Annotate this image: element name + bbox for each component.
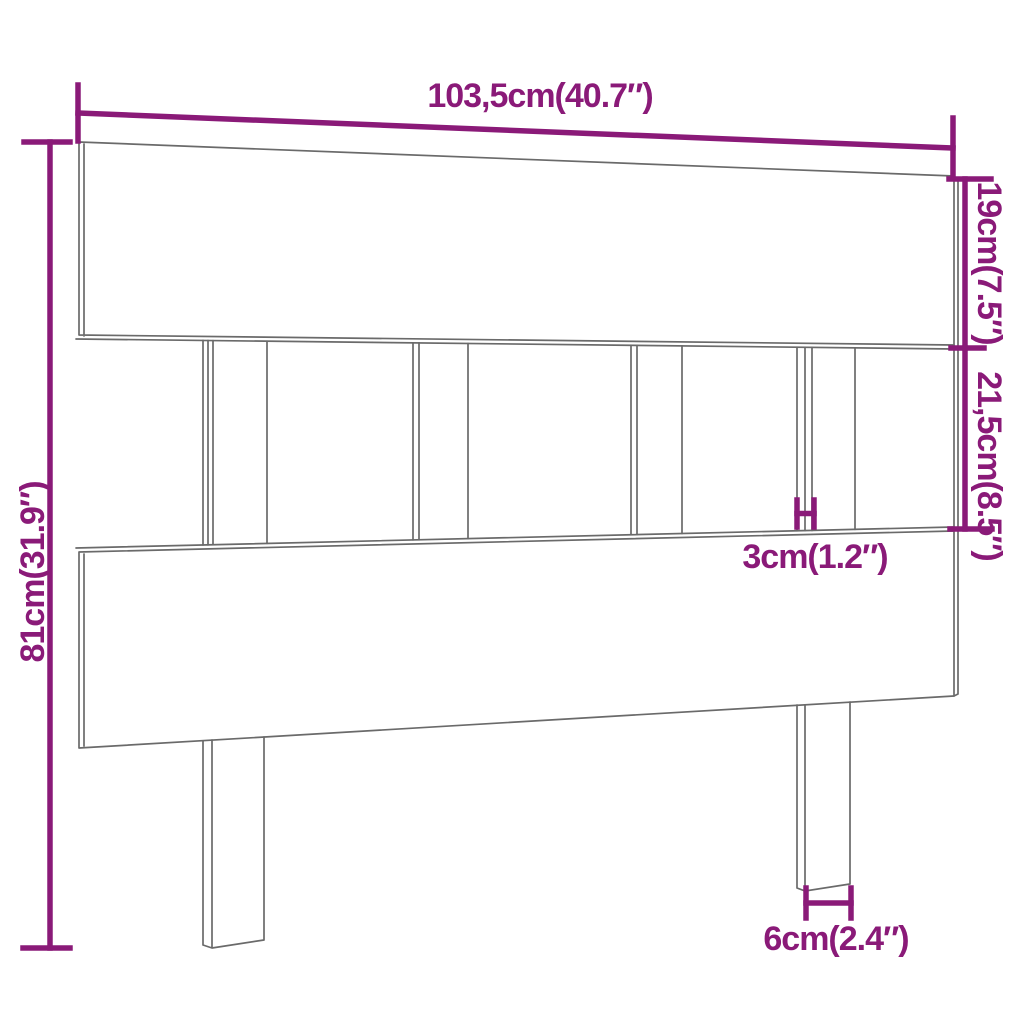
dim-overall-height-label: 81cm(31.9″) — [14, 481, 52, 662]
dim-slat-thickness-label: 3cm(1.2″) — [742, 538, 887, 576]
dim-middle-section-height-label: 21,5cm(8.5″) — [970, 371, 1008, 561]
diagram-canvas: 103,5cm(40.7″) 19cm(7.5″) 21,5cm(8.5″) 8… — [0, 0, 1024, 1024]
slat-1 — [203, 340, 267, 545]
dim-leg-width-label: 6cm(2.4″) — [763, 920, 908, 958]
slat-3 — [631, 345, 682, 534]
right-leg — [797, 702, 850, 891]
slat-4 — [797, 347, 855, 531]
dimension-labels: 103,5cm(40.7″) 19cm(7.5″) 21,5cm(8.5″) 8… — [14, 77, 1008, 958]
dim-width-line — [78, 113, 953, 148]
left-leg — [203, 737, 264, 948]
slat-2 — [413, 343, 468, 540]
right-end-edge — [954, 176, 958, 696]
dimension-annotations — [23, 85, 992, 948]
top-board-outline — [76, 142, 954, 349]
dim-width-label: 103,5cm(40.7″) — [427, 77, 652, 115]
product-dimension-diagram: 103,5cm(40.7″) 19cm(7.5″) 21,5cm(8.5″) 8… — [0, 0, 1024, 1024]
dim-top-board-height-label: 19cm(7.5″) — [970, 181, 1008, 344]
dim-leg-width — [806, 888, 851, 918]
